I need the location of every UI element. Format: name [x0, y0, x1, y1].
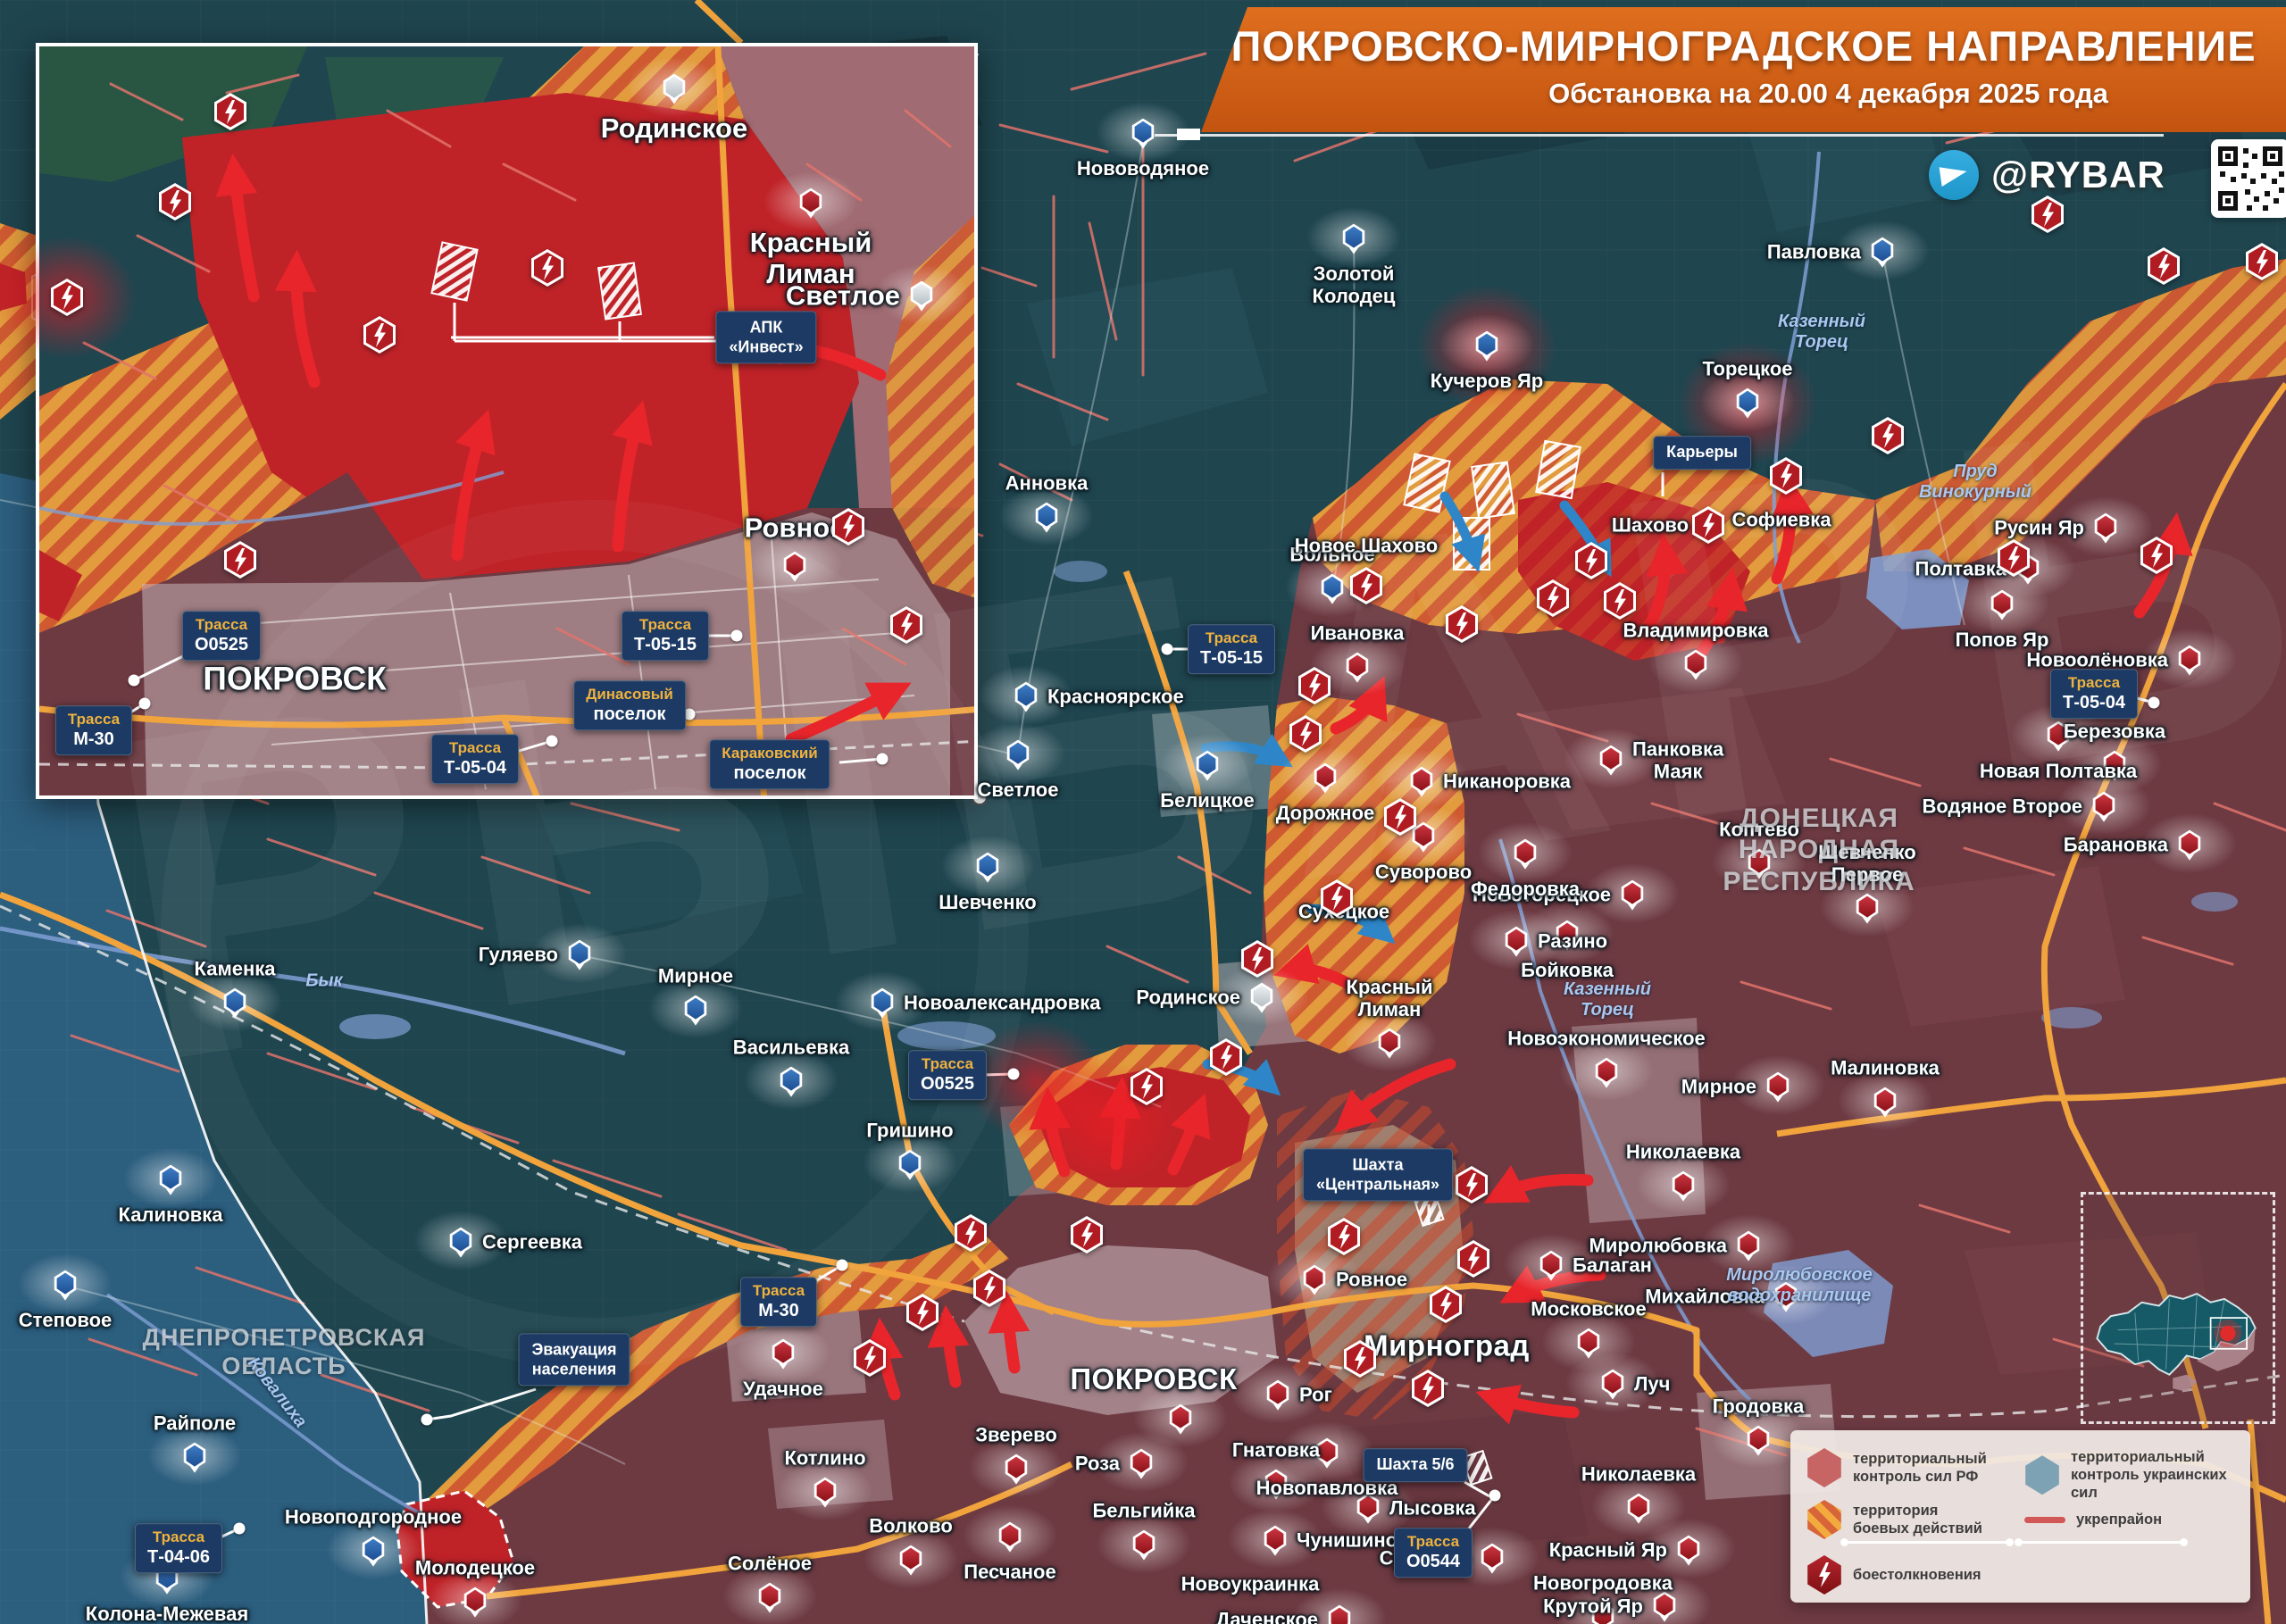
advance-arrow-ru — [1336, 689, 1379, 729]
label-connector — [1464, 1482, 1489, 1496]
map-title: ПОКРОВСКО-МИРНОГРАДСКОЕ НАПРАВЛЕНИЕ — [1201, 21, 2286, 71]
advance-arrow-ru — [1116, 1091, 1122, 1164]
advance-arrow-ru — [880, 1332, 895, 1395]
advance-arrow-ru — [457, 423, 484, 555]
legend-label: территория боевых действий — [1853, 1502, 1982, 1537]
label-connector — [121, 704, 145, 719]
title-banner: ПОКРОВСКО-МИРНОГРАДСКОЕ НАПРАВЛЕНИЕ Обст… — [1201, 7, 2286, 132]
legend-item-ua-control: территориальный контроль украинских сил — [2024, 1448, 2243, 1502]
legend-item-fortified-area: укрепрайон — [2024, 1511, 2243, 1528]
advance-arrow-ru — [1648, 548, 1665, 629]
advance-arrow-ru — [618, 414, 639, 546]
advance-arrow-ru — [1048, 1102, 1064, 1171]
combat-zone-swatch — [1806, 1500, 1842, 1539]
ruler-dot — [2180, 1538, 2188, 1546]
advance-arrow-ru — [1497, 1179, 1588, 1196]
ru-control-swatch — [1806, 1448, 1842, 1487]
advance-arrow-ru — [1007, 1305, 1014, 1368]
label-connector — [839, 759, 882, 762]
advance-arrow-ru — [234, 168, 254, 296]
situation-map: РЫБАРЬ НововодяноеЗолотой КолодецКучеров… — [0, 0, 2286, 1624]
scale-block — [1177, 129, 1200, 140]
credit: @RYBAR — [1929, 150, 2165, 200]
label-connector — [427, 1389, 536, 1420]
label-connector — [672, 710, 689, 714]
legend-label: территориальный контроль украинских сил — [2071, 1448, 2243, 1502]
label-connector — [1469, 1495, 1495, 1528]
fortified-area-swatch — [2024, 1517, 2065, 1523]
label-connector — [983, 1074, 1014, 1075]
advance-arrow-ru — [1173, 1107, 1200, 1170]
advance-arrow-ru — [296, 264, 314, 382]
legend-scale-ruler — [1844, 1541, 2009, 1544]
label-connector — [516, 741, 552, 752]
advance-arrow-ua — [1445, 496, 1475, 561]
advance-arrow-ru — [2140, 527, 2175, 612]
label-connector — [808, 1265, 842, 1286]
scale-line — [1155, 134, 2164, 137]
legend-label: боестолкновения — [1853, 1566, 1981, 1584]
advance-arrow-ru — [1345, 1064, 1450, 1123]
advance-arrow-ru — [1698, 582, 1731, 657]
qr-code[interactable] — [2211, 139, 2286, 218]
advance-arrow-ru — [1777, 489, 1790, 579]
label-connector — [134, 656, 183, 680]
legend-item-clashes: боестолкновения — [1806, 1555, 2012, 1595]
advance-arrow-ua — [1564, 505, 1606, 566]
legend-scale-ruler — [2018, 1541, 2183, 1544]
telegram-icon[interactable] — [1929, 150, 1979, 200]
legend-label: территориальный контроль сил РФ — [1853, 1450, 1987, 1486]
advance-arrow-ru — [947, 1320, 955, 1382]
ruler-dot — [2006, 1538, 2014, 1546]
advance-arrow-ua — [1206, 746, 1282, 761]
telegram-handle[interactable]: @RYBAR — [1991, 154, 2165, 196]
advance-arrow-ru — [752, 347, 880, 375]
ukraine-minimap — [2081, 1192, 2275, 1424]
ruler-dot — [2015, 1538, 2023, 1546]
legend-label: укрепрайон — [2076, 1511, 2162, 1528]
label-connector — [2130, 696, 2154, 703]
advance-arrow-ru — [1489, 1396, 1573, 1412]
ruler-dot — [1840, 1538, 1848, 1546]
advance-arrow-ru — [791, 689, 898, 739]
map-subtitle: Обстановка на 20.00 4 декабря 2025 года — [1201, 78, 2286, 110]
legend-item-ru-control: территориальный контроль сил РФ — [1806, 1448, 2012, 1487]
ua-control-swatch — [2024, 1455, 2060, 1495]
advance-arrow-ru — [1513, 1275, 1600, 1296]
legend-item-combat-zone: территория боевых действий — [1806, 1500, 2012, 1539]
advance-arrow-ua — [1311, 909, 1386, 936]
clashes-swatch — [1806, 1555, 1842, 1595]
advance-arrow-ru — [1288, 970, 1348, 984]
legend-panel: территориальный контроль сил РФ территор… — [1790, 1430, 2250, 1603]
advance-arrow-ua — [1207, 1064, 1272, 1087]
label-connector — [214, 1528, 239, 1540]
